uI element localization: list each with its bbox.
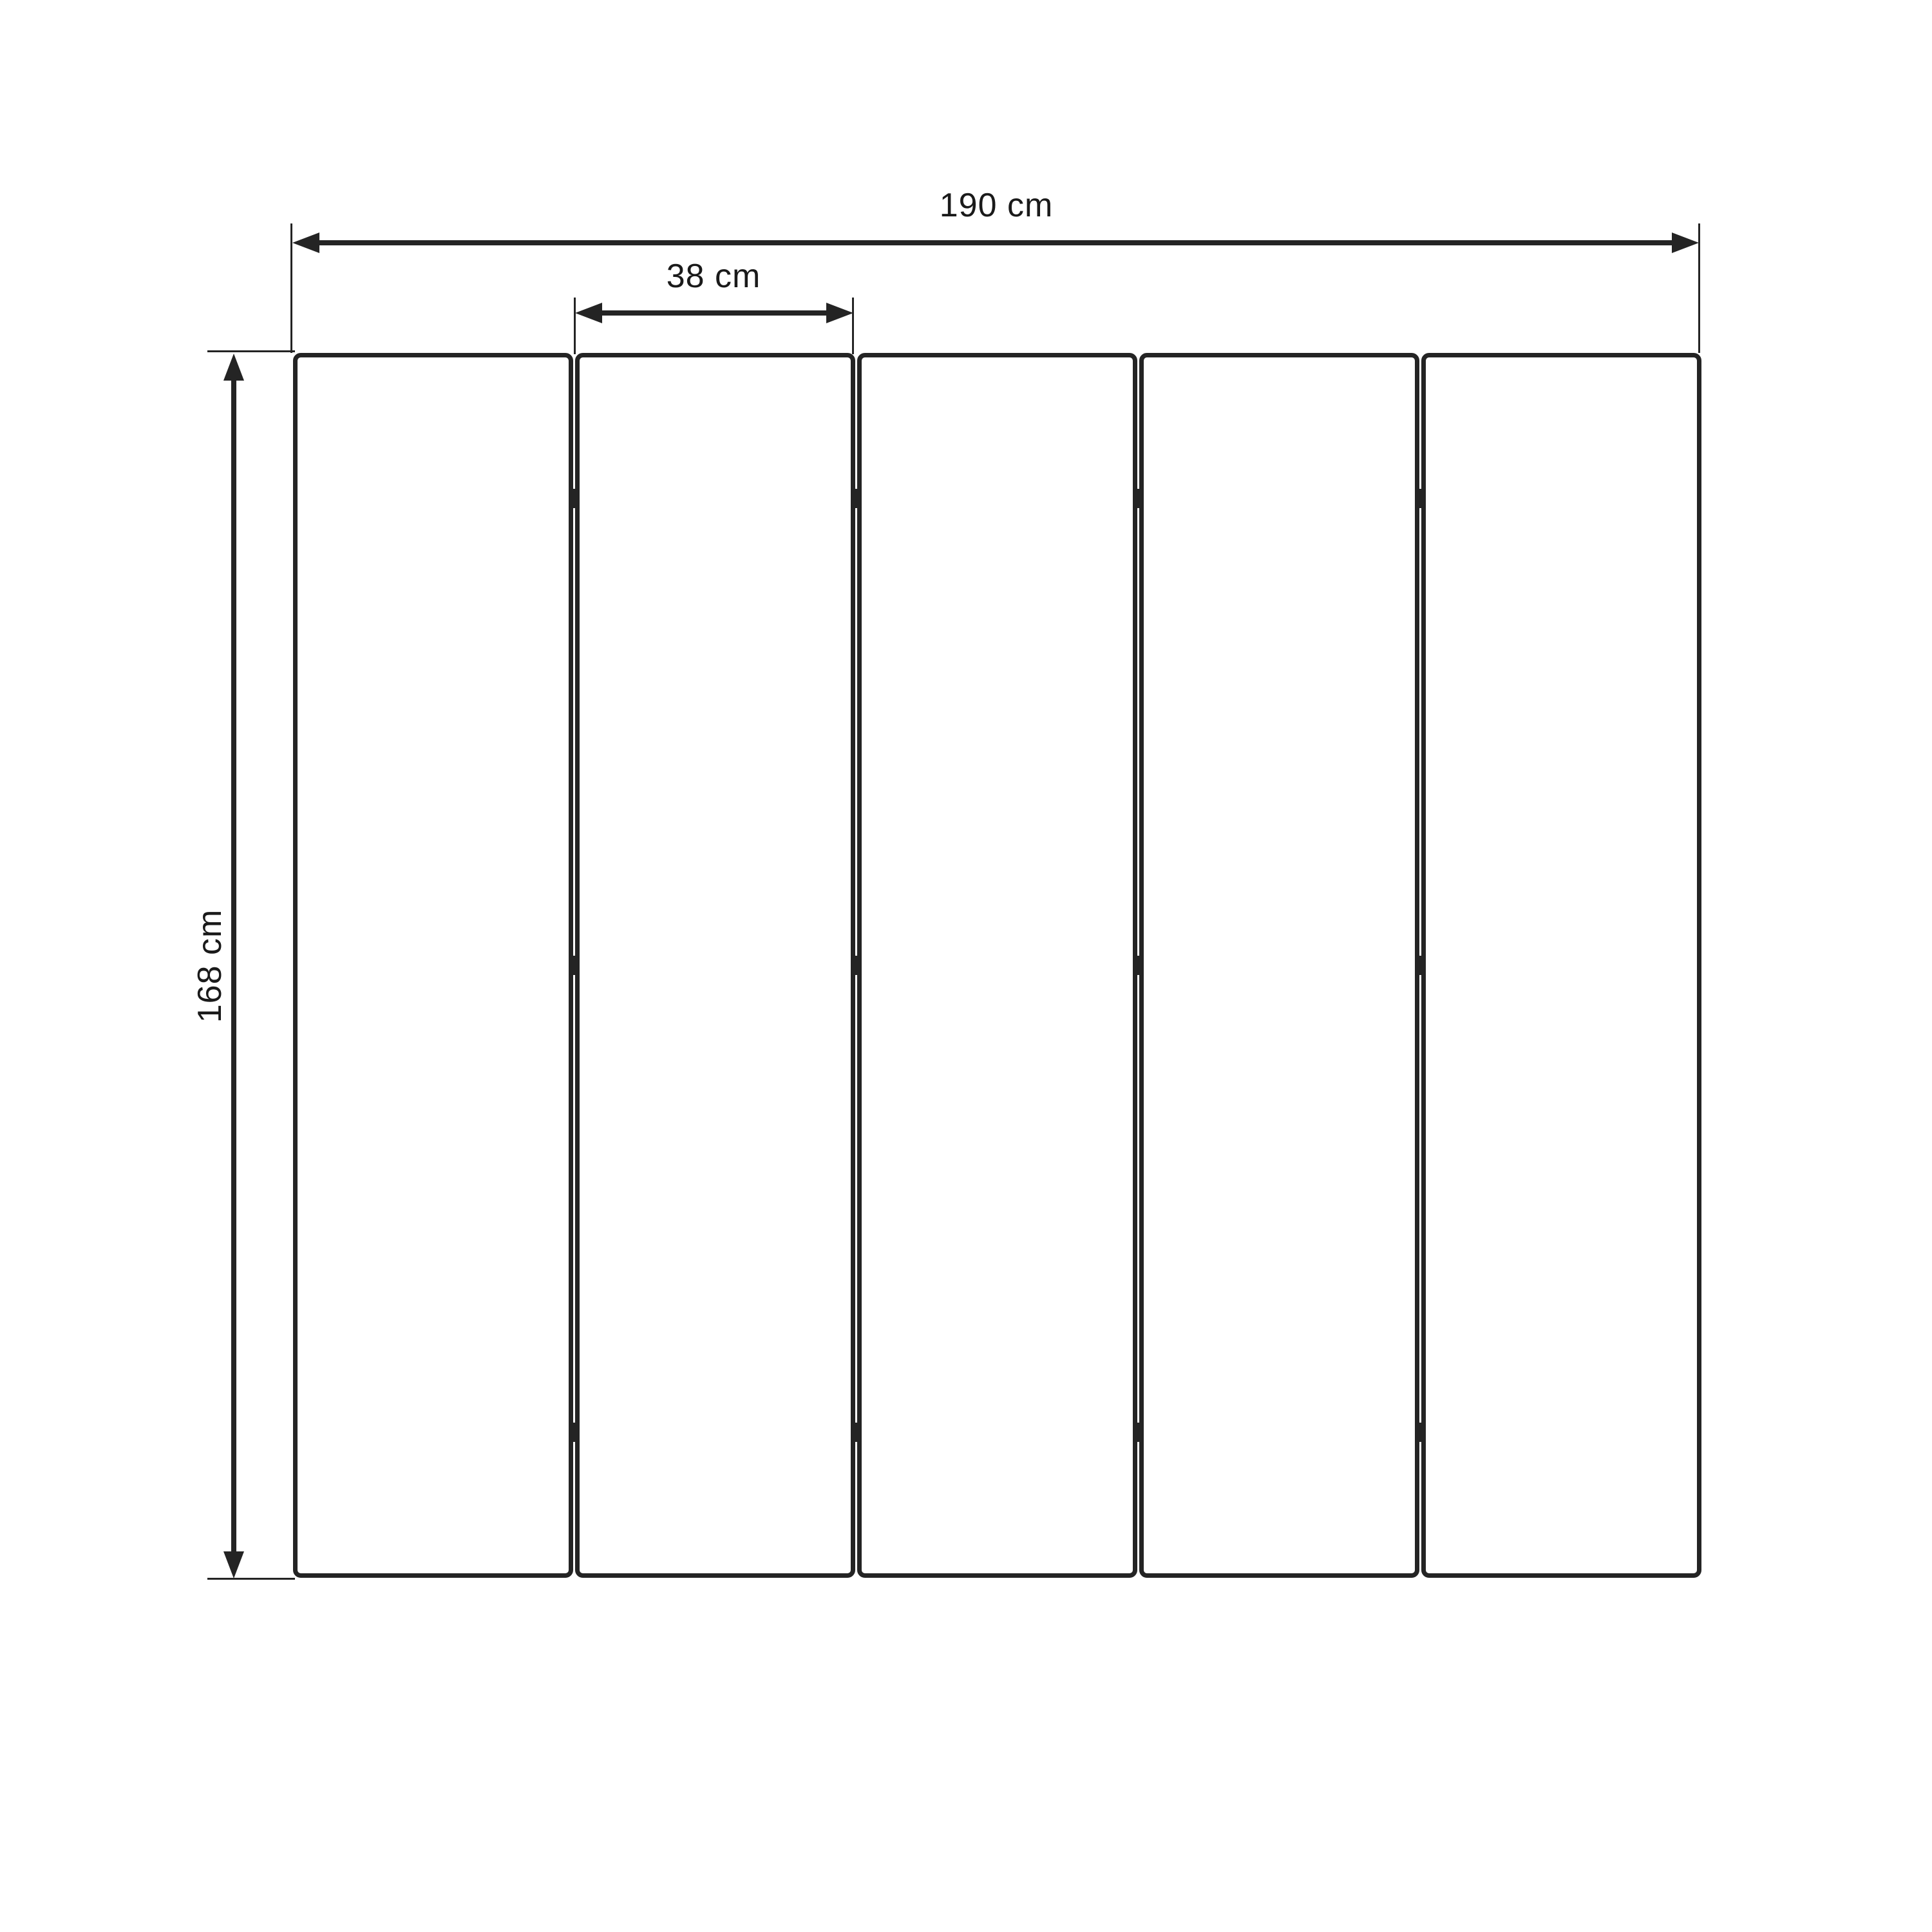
panel <box>293 353 573 1578</box>
height-dimension-line <box>231 377 236 1553</box>
panel <box>857 353 1137 1578</box>
height-label: 168 cm <box>190 869 230 1063</box>
hinge-icon <box>851 956 862 975</box>
arrowhead-left-icon <box>292 232 319 253</box>
hinge-icon <box>1416 1423 1426 1442</box>
arrowhead-down-icon <box>223 1551 244 1578</box>
arrowhead-right-icon <box>826 303 853 323</box>
hinge-icon <box>569 1423 580 1442</box>
extension-line <box>207 1578 295 1580</box>
panel <box>1421 353 1701 1578</box>
hinge-icon <box>851 1423 862 1442</box>
hinge-icon <box>569 489 580 508</box>
hinge-icon <box>1133 1423 1144 1442</box>
hinge-icon <box>1416 489 1426 508</box>
hinge-icon <box>1416 956 1426 975</box>
extension-line <box>852 298 854 354</box>
panel <box>1139 353 1419 1578</box>
extension-line <box>290 223 292 353</box>
total-width-dimension-line <box>316 240 1676 245</box>
arrowhead-up-icon <box>223 354 244 381</box>
dimension-diagram: 190 cm 38 cm 168 cm <box>0 0 1932 1932</box>
extension-line <box>574 298 576 354</box>
hinge-icon <box>1133 489 1144 508</box>
hinge-icon <box>1133 956 1144 975</box>
arrowhead-right-icon <box>1672 232 1699 253</box>
panel-width-label: 38 cm <box>617 256 810 296</box>
panel-assembly <box>293 353 1701 1578</box>
hinge-icon <box>851 489 862 508</box>
extension-line <box>207 350 295 352</box>
panel-width-dimension-line <box>599 310 831 316</box>
panel <box>575 353 855 1578</box>
hinge-icon <box>569 956 580 975</box>
total-width-label: 190 cm <box>900 185 1093 225</box>
arrowhead-left-icon <box>575 303 602 323</box>
extension-line <box>1698 223 1700 353</box>
